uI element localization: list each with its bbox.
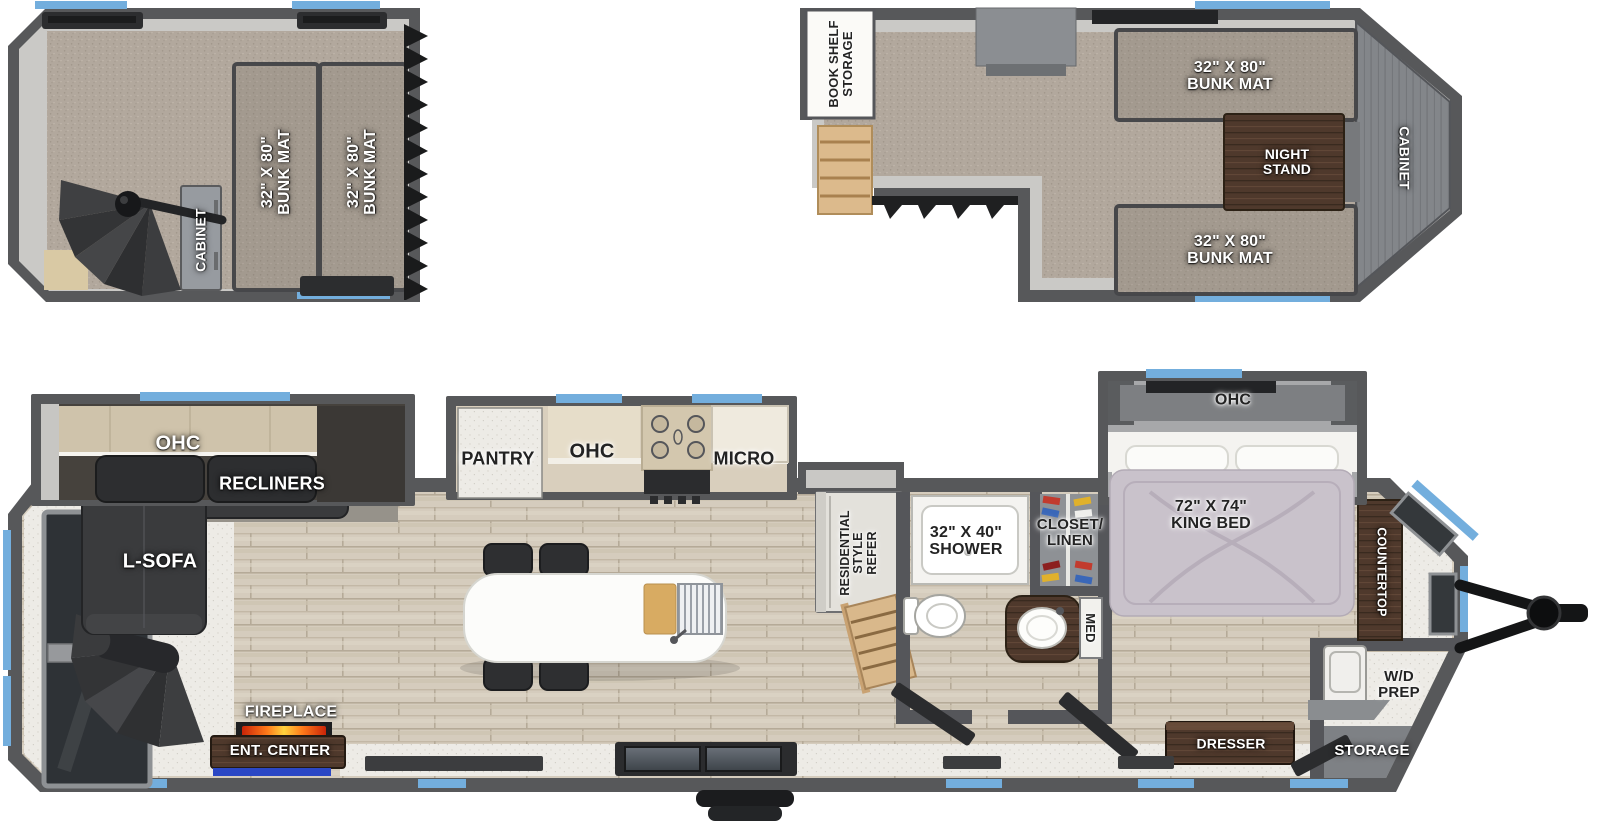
window-accent [1290,779,1348,788]
refrigerator [816,492,902,612]
king-bed [1110,440,1354,616]
bunk-foot-vent [300,276,394,296]
rv-floorplan: 32" X 80" BUNK MAT 32" X 80" BUNK MAT CA… [0,0,1600,826]
recliner [96,456,204,502]
closet-linen [1040,494,1098,586]
book-shelf-storage [806,10,874,118]
cutting-board [644,584,676,634]
recliner [208,456,316,502]
entry-steps [696,790,794,821]
window-accent [1138,779,1194,788]
front-loft [800,1,1462,302]
bath-vanity [1006,596,1080,662]
window-accent [946,779,1002,788]
window-accent [1460,566,1468,632]
rear-bunk-mats [234,64,406,290]
night-stand [1224,114,1344,210]
window-accent [418,779,466,788]
bedroom-tv [1146,381,1276,393]
overhead-storage-cube [976,8,1076,66]
countertop [1358,500,1402,640]
window-accent [35,1,127,9]
window-accent [3,530,11,670]
shower [912,496,1028,584]
toilet [904,595,965,637]
trailer-hitch [1460,585,1588,648]
entertainment-center [211,736,345,776]
front-loft-cabinet [1356,22,1450,288]
cap-window [1430,574,1456,634]
overhead-cabinet [548,406,640,460]
living-slideout [31,392,415,506]
washer-dryer-prep [1324,646,1366,704]
dresser [1166,722,1294,764]
rear-loft-cabinet [181,186,221,290]
threshold-mat [1118,756,1174,769]
kitchen-slideout [446,394,797,504]
entry-door [615,742,797,776]
med-cabinet [1080,598,1102,658]
pantry [458,408,542,498]
threshold-mat [365,756,543,771]
window-accent [1146,369,1242,378]
overhead-cabinet [59,406,317,454]
window-accent [140,392,290,401]
microwave [712,406,788,462]
window-accent [556,394,622,403]
island-sink [678,584,722,634]
window-accent [292,1,380,9]
pillow [1236,446,1338,472]
kitchen-island [464,574,726,662]
window-accent [3,676,11,746]
cooktop [642,406,712,470]
rear-loft [8,1,428,302]
window-accent [692,394,762,403]
threshold-mat [943,756,1001,769]
loft-tv [1092,10,1218,24]
floorplan-drawing [0,0,1600,826]
pillow [1126,446,1228,472]
window-accent [1195,1,1330,9]
